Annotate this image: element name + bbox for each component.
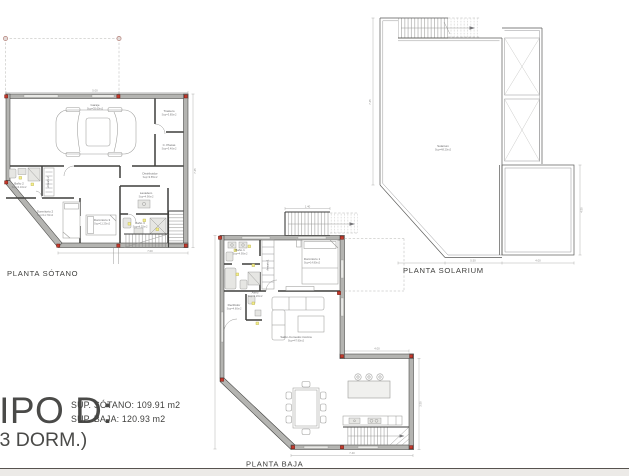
room-label-armario1: Armario 1	[266, 259, 270, 271]
plan-title-sotano: PLANTA SÓTANO	[7, 269, 78, 278]
coffee-table-icon	[298, 316, 324, 332]
room-label-armario2: Armario 2	[46, 176, 50, 188]
door-arc	[155, 124, 165, 134]
room-sup-bano2: Sup=4.10m2	[12, 185, 27, 189]
room-sup-aseo: Sup=2.20m2	[248, 294, 263, 298]
area-specs: SUP. SÓTANO: 109.91 m2 SUP. BAJA: 120.93…	[71, 399, 180, 426]
room-sup-garaje: Sup=35.60m2	[87, 107, 104, 111]
window-opening	[92, 95, 114, 98]
room-label-lavadero: Lavadero	[140, 191, 153, 195]
room-sup-salon: Sup=47.90m2	[288, 339, 305, 343]
window-opening	[242, 237, 270, 239]
room-sup-recibidor: Sup=4.60m2	[227, 307, 242, 311]
area-baja-text: SUP. BAJA: 120.93 m2	[71, 413, 180, 427]
room-label-recibidor: Recibidor	[228, 303, 241, 307]
door-arc	[36, 191, 42, 198]
stairs-up	[285, 212, 358, 236]
room-label-dormitorio2: Dormitorio 2	[37, 210, 54, 214]
car-icon	[56, 108, 136, 157]
window-opening	[221, 312, 223, 342]
window-opening	[304, 446, 328, 448]
room-label-salon: Salón-Comedor-Cocina	[280, 335, 312, 339]
window-opening	[341, 260, 344, 278]
void-lattice-column	[502, 28, 542, 164]
dim-bottom: 7.00	[147, 249, 153, 253]
kitchen-island-icon	[348, 374, 390, 398]
stairs-down	[343, 427, 409, 445]
laundry-fixtures	[138, 200, 150, 208]
dim-right: 3.50	[419, 401, 423, 407]
exterior-walls	[380, 18, 502, 258]
room-sup-solarium: Sup=48.20m2	[435, 148, 452, 152]
room-sup-lavadero: Sup=4.90m2	[139, 195, 154, 199]
room-sup-distribuidor: Sup=9.85m2	[143, 175, 158, 179]
sheet-footer-strip	[0, 468, 629, 476]
room-label-solarium: Solarium	[437, 144, 449, 148]
garage-door-opening	[24, 95, 58, 98]
room-sup-bano3: Sup=4.35m2	[133, 225, 148, 229]
kitchen-counter	[343, 416, 402, 425]
stairs-solarium	[398, 18, 480, 38]
door-arc	[64, 166, 74, 176]
dimension-lines: 7.45 5.50 4.00 4.50	[368, 18, 583, 265]
room-label-trastero: Trastero	[163, 109, 174, 113]
room-label-placas: C. Placas	[163, 143, 176, 147]
dining-table-icon	[286, 382, 326, 435]
dim-bottom-left: 5.50	[470, 259, 476, 263]
tv-cabinet-icon	[286, 287, 314, 291]
room-sup-bano1: Sup=4.95m2	[233, 252, 248, 256]
bed-dormitorio2-icon	[63, 202, 80, 238]
window-opening	[341, 298, 344, 316]
column-circle-marker	[117, 36, 121, 40]
dim-bottom-right: 4.00	[535, 259, 541, 263]
room-labels: Solarium Sup=48.20m2	[435, 144, 452, 152]
plan-title-solarium: PLANTA SOLARIUM	[403, 266, 484, 275]
lower-terrace-outline	[502, 165, 574, 255]
dim-step: 4.00	[374, 347, 380, 351]
dim-bottom: 7.40	[349, 451, 355, 455]
room-sup-dormitorio2: Sup=11.70m2	[37, 213, 54, 217]
column-circle-marker	[3, 36, 7, 40]
bedrooms-subtitle: (3 DORM.)	[0, 429, 87, 452]
bed-dormitorio1-icon	[286, 240, 338, 291]
dim-left: 7.45	[368, 99, 372, 105]
room-label-dormitorio1: Dormitorio 1	[304, 257, 321, 261]
floorplan-solarium-drawing: 7.45 5.50 4.00 4.50 Solarium Sup=48.20m2…	[368, 6, 629, 278]
room-label-aseo: Aseo	[252, 291, 259, 295]
room-sup-trastero: Sup=3.85m2	[162, 113, 177, 117]
area-sotano-text: SUP. SÓTANO: 109.91 m2	[71, 399, 180, 413]
floorplan-sotano-drawing: 5.00 7.45 7.00	[0, 6, 205, 278]
dim-right: 4.50	[580, 207, 584, 213]
window-opening	[298, 237, 326, 239]
room-label-dormitorio3: Dormitorio 3	[94, 218, 111, 222]
plan-title-baja: PLANTA BAJA	[246, 460, 304, 469]
room-label-bano3: Baño 3	[135, 221, 145, 225]
dim-stairs: 1.40	[305, 204, 311, 208]
room-sup-dormitorio1: Sup=14.80m2	[304, 261, 321, 265]
room-label-bano1: Baño 1	[235, 248, 245, 252]
room-label-bano2: Baño 2	[14, 182, 24, 186]
drawing-sheet: 5.00 7.45 7.00	[0, 0, 629, 476]
floorplan-solarium: 7.45 5.50 4.00 4.50 Solarium Sup=48.20m2…	[368, 6, 629, 278]
room-sup-dormitorio3: Sup=11.25m2	[94, 222, 111, 226]
window-opening	[358, 446, 378, 448]
ramp-dashed-outline	[3, 36, 121, 94]
door-arc	[266, 280, 277, 291]
dim-right: 7.45	[193, 168, 197, 174]
dim-top: 5.00	[92, 88, 98, 92]
room-label-garaje: Garaje	[90, 103, 99, 107]
sofa-icon	[272, 297, 324, 340]
door-arc	[224, 319, 237, 332]
room-sup-placas: Sup=3.40m2	[162, 147, 177, 151]
floorplan-sotano: 5.00 7.45 7.00	[0, 6, 205, 278]
room-label-distribuidor: Distribuidor	[142, 172, 157, 176]
